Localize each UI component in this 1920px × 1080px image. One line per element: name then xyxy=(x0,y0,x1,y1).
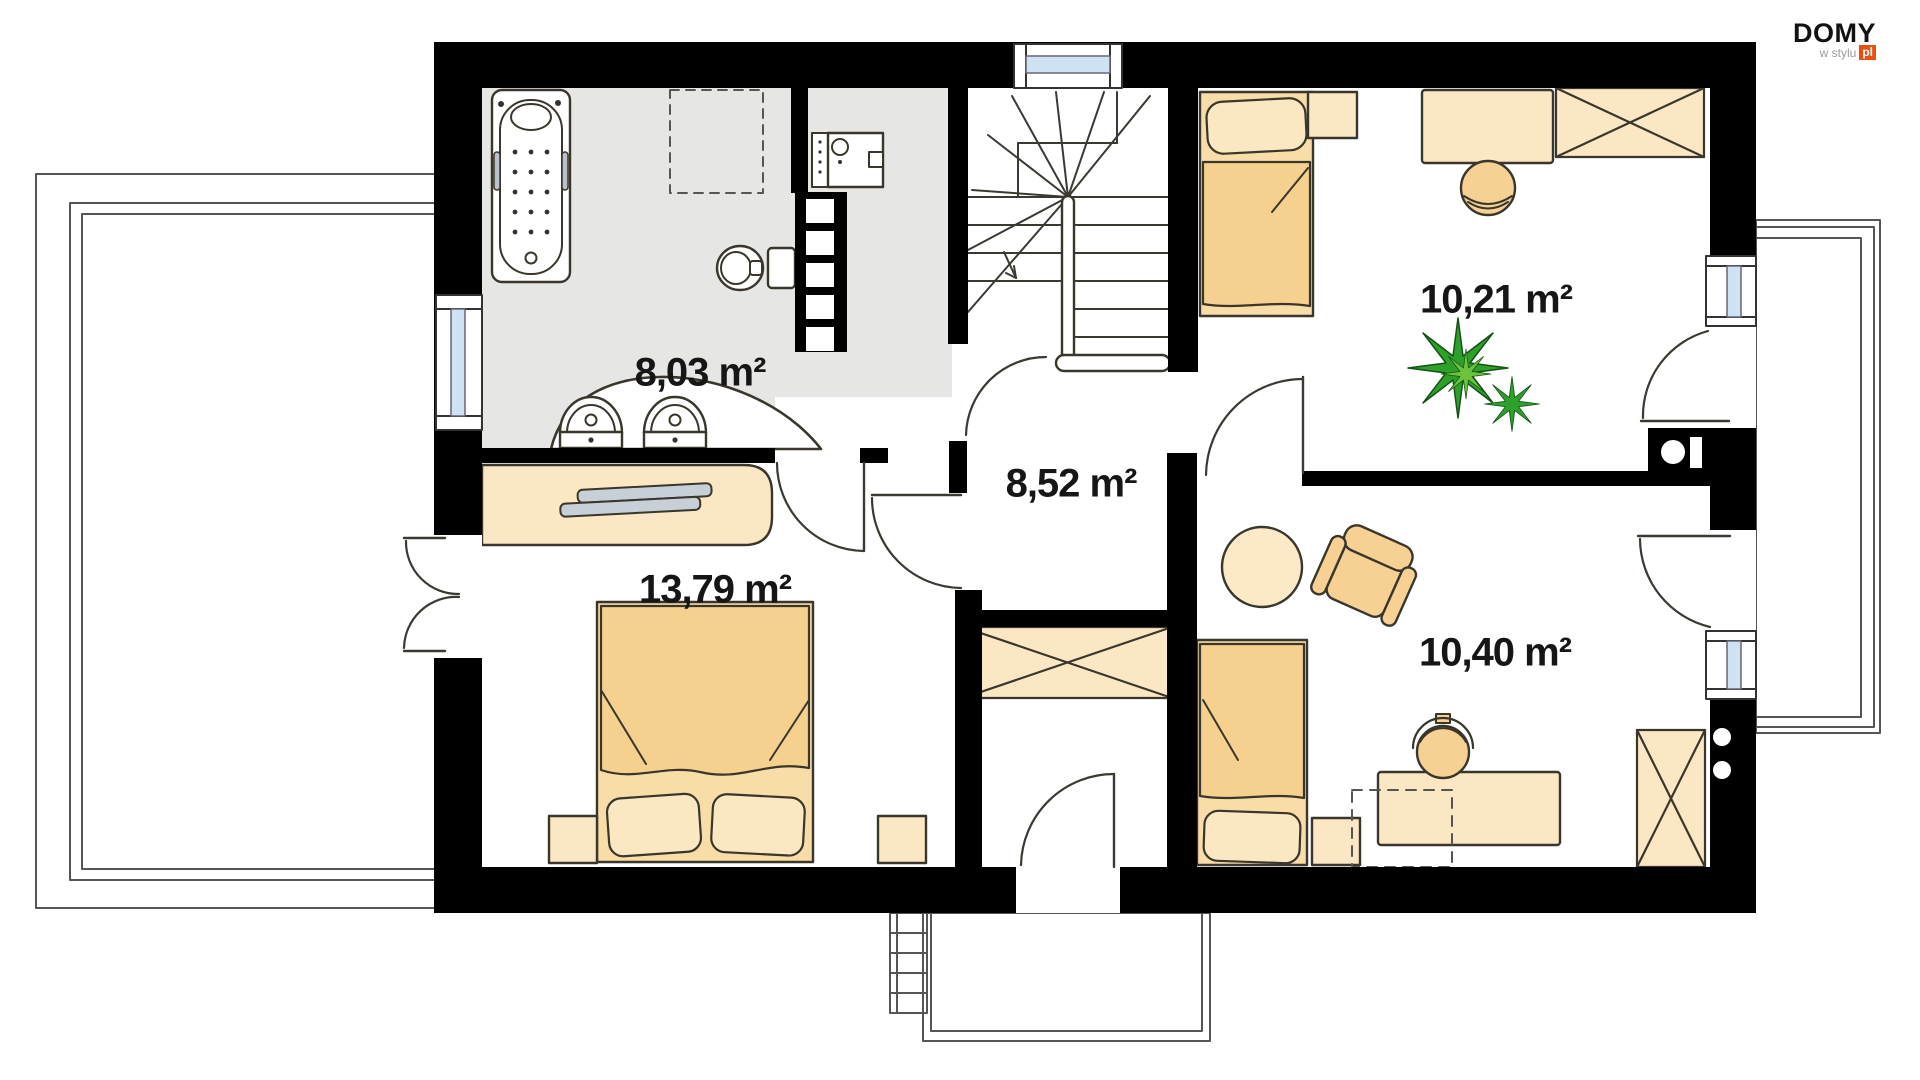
double-bed xyxy=(597,602,813,862)
floor-plan-canvas xyxy=(0,0,1920,1080)
entrance-door xyxy=(1021,774,1114,867)
towel-radiator-chimney xyxy=(795,192,847,352)
site-logo[interactable]: DOMY w stylu pl xyxy=(1793,20,1876,60)
nightstand-top-right xyxy=(1308,92,1357,138)
office-chair xyxy=(1413,714,1473,778)
door-bathroom xyxy=(777,463,864,551)
nightstand-bottom-right xyxy=(1312,818,1360,865)
stairs-bottom-landing xyxy=(1056,355,1170,371)
logo-tagline-text: w stylu xyxy=(1820,47,1857,59)
plant xyxy=(1408,318,1540,432)
chimney-right xyxy=(1648,428,1756,486)
logo-suffix-badge: pl xyxy=(1859,45,1876,60)
toilet xyxy=(717,246,795,290)
armchair xyxy=(1309,517,1426,628)
exterior-steps xyxy=(890,913,927,1013)
window-top xyxy=(1014,44,1122,88)
window-right-upper xyxy=(1706,256,1756,326)
logo-brand-text: DOMY xyxy=(1793,20,1876,47)
stairs-handrail xyxy=(1062,196,1074,363)
door-bedroom-top-right xyxy=(1206,377,1303,475)
desk-top-right xyxy=(1422,90,1553,163)
desk-bottom-right xyxy=(1378,772,1560,845)
terrace-outline xyxy=(36,174,440,908)
room-label-bathroom: 8,03 m² xyxy=(635,351,766,396)
stairs-direction-arrow xyxy=(1004,252,1016,278)
stool xyxy=(1461,161,1515,215)
washing-machine xyxy=(812,133,883,187)
single-bed-top xyxy=(1200,92,1313,316)
window-left xyxy=(436,295,482,430)
nightstand-main-right xyxy=(878,816,926,863)
bathtub xyxy=(492,90,570,282)
single-bed-bottom xyxy=(1197,640,1307,865)
window-right-lower xyxy=(1706,631,1756,699)
balcony-outline xyxy=(1756,220,1880,733)
room-label-bedroom-main: 13,79 m² xyxy=(639,568,791,613)
porch-outline xyxy=(923,913,1210,1041)
wardrobe-hallway xyxy=(963,627,1172,698)
wardrobe-bottom-right xyxy=(1637,730,1705,867)
round-table xyxy=(1222,527,1302,607)
wardrobe-top-right xyxy=(1556,88,1704,157)
door-bedroom-main xyxy=(872,495,961,588)
door-hall-stairs xyxy=(966,357,1046,435)
room-label-bedroom-bottom-right: 10,40 m² xyxy=(1419,631,1571,676)
room-label-hallway: 8,52 m² xyxy=(1006,462,1137,507)
room-label-bedroom-top-right: 10,21 m² xyxy=(1420,278,1572,323)
nightstand-main-left xyxy=(549,816,597,863)
floor-plan-page: 8,03 m² 8,52 m² 13,79 m² 10,21 m² 10,40 … xyxy=(0,0,1920,1080)
